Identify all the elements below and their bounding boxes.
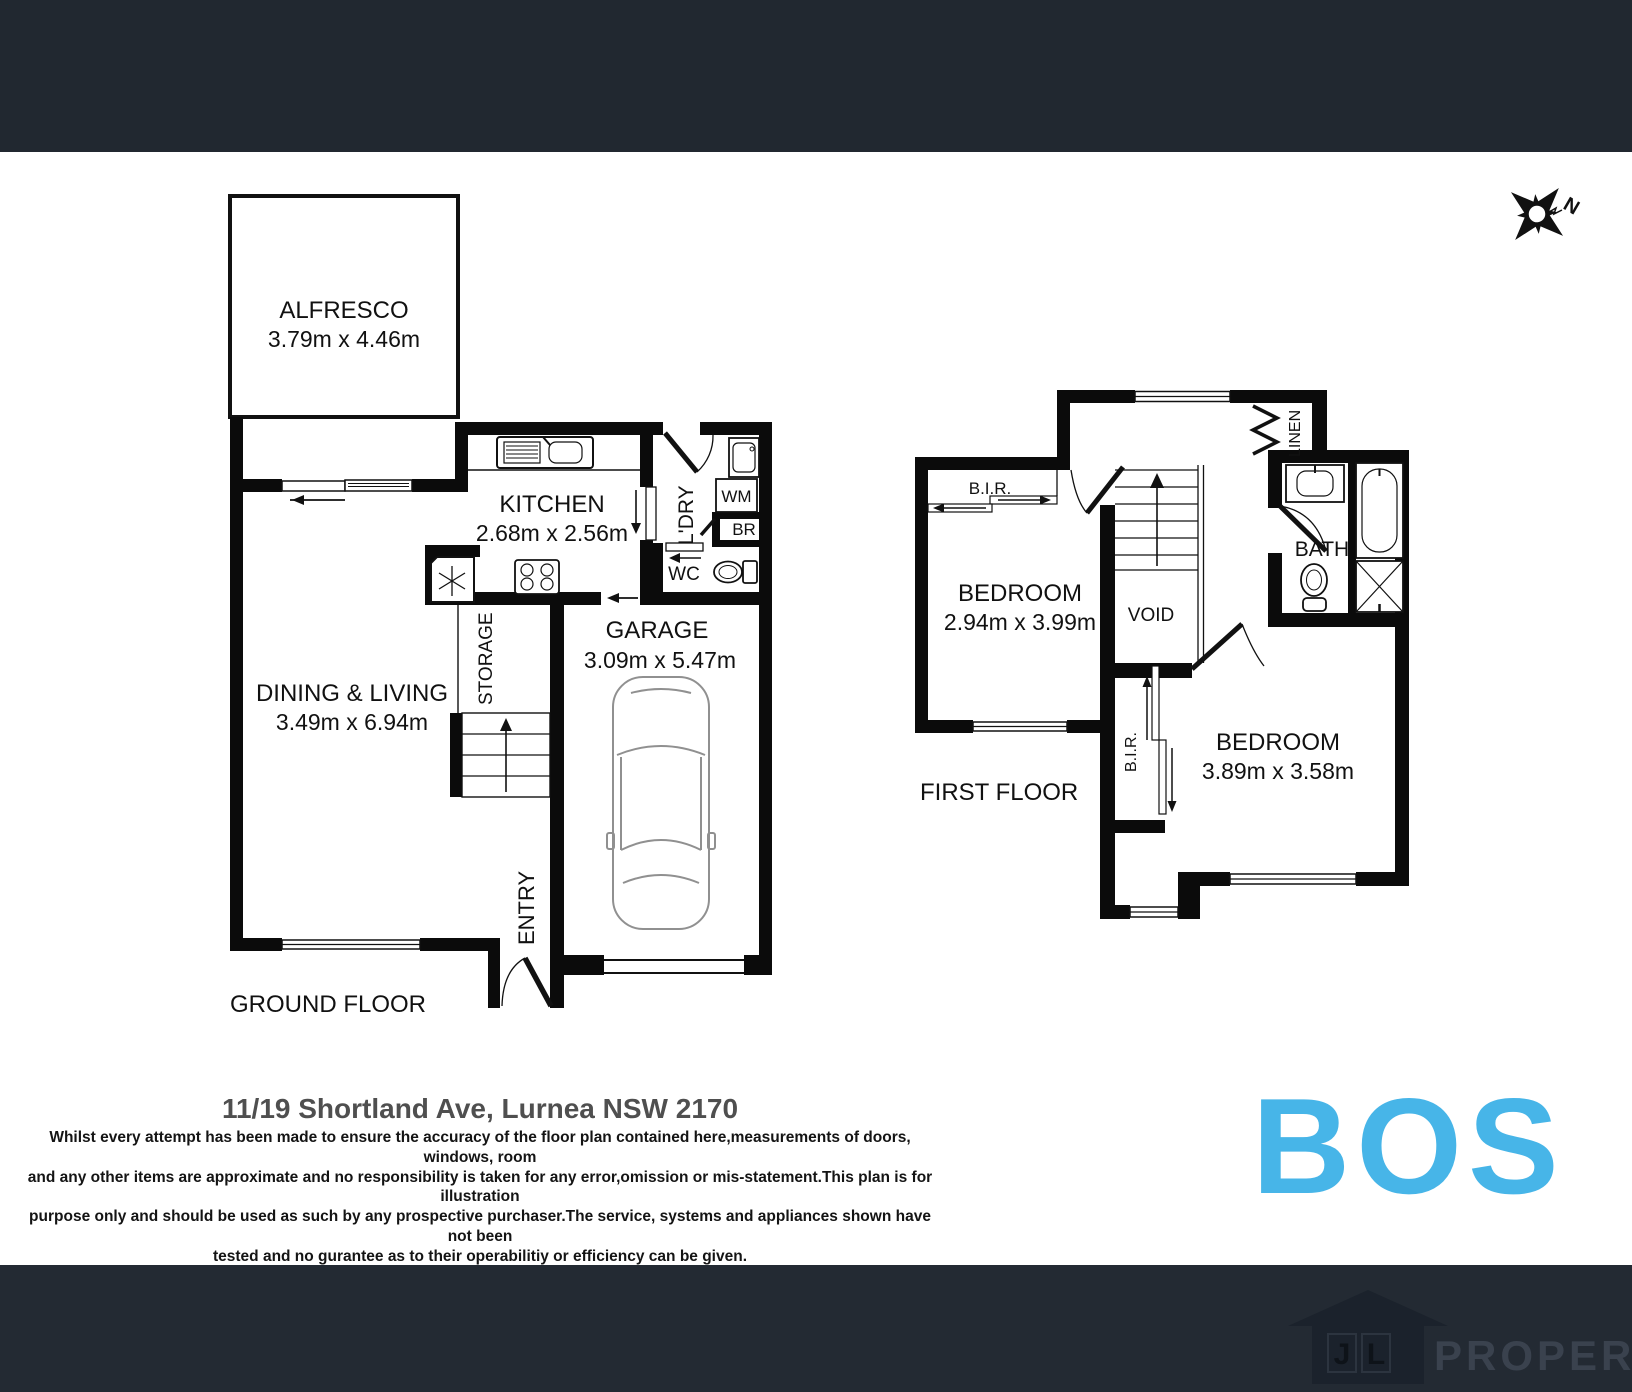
bedroom2-door <box>1192 624 1264 669</box>
kitchen-slider-door <box>631 487 656 540</box>
floorplan-page: ALFRESCO 3.79m x 4.46m <box>0 0 1632 1392</box>
wc-label: WC <box>668 564 700 585</box>
kitchen-dims: 2.68m x 2.56m <box>476 520 628 546</box>
property-address: 11/19 Shortland Ave, Lurnea NSW 2170 <box>20 1093 940 1125</box>
stairs-first-floor <box>1115 465 1204 663</box>
alfresco-label: ALFRESCO <box>279 297 408 324</box>
bir1-label: B.I.R. <box>969 479 1012 498</box>
first-floor-title: FIRST FLOOR <box>920 779 1078 806</box>
bir2-label: B.I.R. <box>1123 732 1140 772</box>
linen-closet: LINEN <box>1253 406 1304 457</box>
toilet-ff <box>1301 564 1327 611</box>
br-label: BR <box>732 520 756 539</box>
kitchen-label: KITCHEN <box>499 491 604 518</box>
first-floor-plan: B.I.R. <box>915 390 1409 919</box>
bedroom1-dims: 2.94m x 3.99m <box>944 609 1096 635</box>
wm-label: WM <box>721 487 751 506</box>
laundry-label: L'DRY <box>675 485 698 545</box>
disclaimer-line: tested and no gurantee as to their opera… <box>20 1247 940 1267</box>
bathtub <box>1356 463 1403 558</box>
garage-door <box>604 960 744 973</box>
void-label: VOID <box>1128 605 1174 626</box>
ground-floor-title: GROUND FLOOR <box>230 991 426 1018</box>
front-door <box>502 958 551 1006</box>
disclaimer-line: Whilst every attempt has been made to en… <box>20 1128 940 1168</box>
alfresco-sliding-door <box>282 480 412 505</box>
compass-north-label: N <box>1560 193 1584 219</box>
bedroom2-dims: 3.89m x 3.58m <box>1202 758 1354 784</box>
car <box>607 677 715 929</box>
bedroom2-label: BEDROOM <box>1216 729 1340 756</box>
garage-label: GARAGE <box>606 617 709 644</box>
fridge <box>431 557 474 602</box>
dining-label: DINING & LIVING <box>256 680 448 707</box>
ground-floor-plan: ALFRESCO 3.79m x 4.46m <box>230 196 772 1018</box>
house-roof-icon <box>1288 1290 1448 1326</box>
shower <box>1356 561 1403 612</box>
toilet-gf <box>714 561 757 583</box>
wc-room: WC <box>666 543 757 585</box>
laundry-tub <box>729 438 759 477</box>
vanity-basin <box>1286 465 1344 502</box>
bir2-robe: B.I.R. <box>1123 666 1177 814</box>
kitchen-sink <box>468 437 640 470</box>
disclaimer-line: purpose only and should be used as such … <box>20 1207 940 1247</box>
bath-label: BATH <box>1295 538 1349 561</box>
storage-stairs: STORAGE <box>450 605 550 797</box>
garage-dims: 3.09m x 5.47m <box>584 647 736 673</box>
bos-logo: BOS <box>1252 1078 1612 1214</box>
property-wordmark: PROPERTY <box>1434 1332 1632 1379</box>
washing-machine: WM <box>716 479 757 512</box>
garage-internal-door <box>607 593 638 603</box>
entry-label: ENTRY <box>514 871 539 945</box>
bedroom1-label: BEDROOM <box>958 580 1082 607</box>
linen-label: LINEN <box>1287 410 1304 457</box>
jl-property-logo: J L PROPERTY <box>1288 1282 1632 1390</box>
laundry-door <box>665 433 713 472</box>
dining-window <box>282 938 420 951</box>
bedroom1-door <box>1071 467 1123 513</box>
stove <box>515 560 559 594</box>
disclaimer-line: and any other items are approximate and … <box>20 1168 940 1208</box>
dining-dims: 3.49m x 6.94m <box>276 709 428 735</box>
alfresco-dims: 3.79m x 4.46m <box>268 326 420 352</box>
storage-label: STORAGE <box>476 612 497 705</box>
broom-cupboard: BR <box>701 519 756 539</box>
bir1-robe: B.I.R. <box>928 470 1057 513</box>
disclaimer: Whilst every attempt has been made to en… <box>20 1128 940 1267</box>
jl-initial-j: J <box>1334 1338 1351 1371</box>
jl-initial-l: L <box>1367 1338 1385 1371</box>
compass-rose: N <box>1489 166 1585 262</box>
